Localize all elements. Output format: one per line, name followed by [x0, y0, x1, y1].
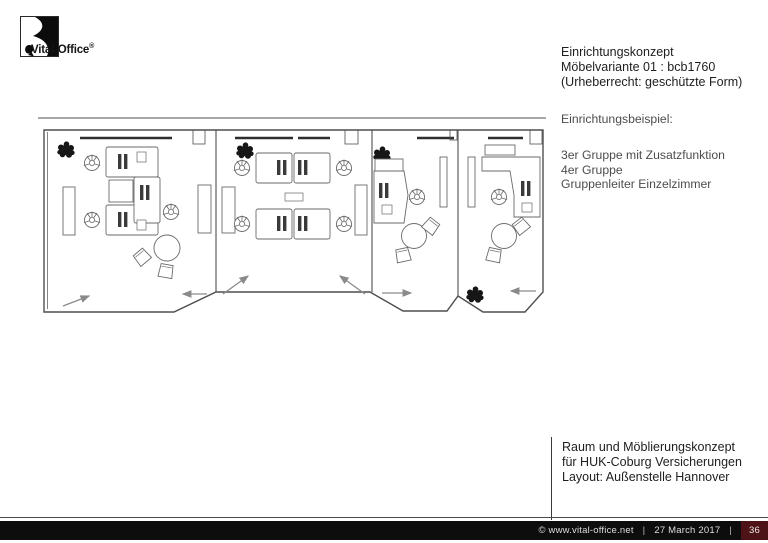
example-title: Einrichtungsbeispiel:	[561, 112, 725, 127]
project-block: Raum und Möblierungskonzept für HUK-Cobu…	[562, 440, 742, 485]
room-gruppenleiter-2	[466, 145, 540, 303]
desk-accessory	[137, 220, 146, 230]
cabinet	[222, 187, 235, 233]
visitor-chair	[486, 247, 502, 263]
desk-accessory	[522, 203, 532, 212]
footer-separator: |	[729, 525, 732, 536]
example-item-2: 4er Gruppe	[561, 163, 725, 178]
footer-date: 27 March 2017	[654, 525, 720, 536]
sideboard	[485, 145, 515, 155]
project-line-1: Raum und Möblierungskonzept	[562, 440, 742, 455]
footer-bar: © www.vital-office.net | 27 March 2017 |…	[0, 521, 768, 540]
footer-hairline	[0, 517, 768, 518]
cabinet	[468, 157, 475, 207]
cabinet	[198, 185, 211, 233]
footer-copyright: © www.vital-office.net	[538, 525, 633, 536]
document-page: Vital-Office® Einrichtungskonzept Möbelv…	[0, 0, 768, 543]
desk-accessory	[137, 152, 146, 162]
office-chair	[163, 204, 179, 220]
visitor-chair	[395, 247, 411, 263]
office-chair	[336, 216, 352, 232]
plant-icon	[57, 141, 74, 157]
project-line-2: für HUK-Coburg Versicherungen	[562, 455, 742, 470]
office-chair	[234, 216, 250, 232]
meeting-table	[492, 224, 517, 249]
plant-icon	[466, 286, 483, 302]
office-chair	[84, 155, 100, 171]
door-swing-arrow	[340, 276, 365, 294]
desk-connector	[109, 180, 133, 202]
door-swing-arrow	[63, 296, 89, 306]
meeting-table	[154, 235, 180, 261]
cabinet	[63, 187, 75, 235]
concept-line-2: Möbelvariante 01 : bcb1760	[561, 60, 742, 75]
project-line-3: Layout: Außenstelle Hannover	[562, 470, 742, 485]
example-item-1: 3er Gruppe mit Zusatzfunktion	[561, 148, 725, 163]
registered-mark: ®	[89, 43, 94, 50]
concept-title-block: Einrichtungskonzept Möbelvariante 01 : b…	[561, 45, 742, 90]
office-chair	[491, 189, 507, 205]
visitor-chair	[158, 263, 174, 278]
vital-office-logo: Vital-Office®	[20, 16, 140, 62]
visitor-chair	[132, 248, 151, 267]
desk-connector	[285, 193, 303, 201]
office-chair	[84, 212, 100, 228]
concept-line-1: Einrichtungskonzept	[561, 45, 742, 60]
room-4er-gruppe	[222, 142, 367, 294]
logo-wordmark: Vital-Office®	[31, 43, 94, 56]
cabinet	[355, 185, 367, 235]
example-block: Einrichtungsbeispiel: 3er Gruppe mit Zus…	[561, 112, 725, 192]
desk	[106, 147, 158, 177]
project-block-rule	[551, 437, 552, 520]
example-item-3: Gruppenleiter Einzelzimmer	[561, 177, 725, 192]
floorplan	[30, 105, 550, 320]
desk	[256, 153, 292, 183]
door-swing-arrow	[223, 276, 248, 294]
office-chair	[409, 189, 425, 205]
page-number-badge: 36	[741, 521, 768, 540]
plant-icon	[236, 142, 253, 158]
desk-accessory	[382, 205, 392, 214]
office-chair	[336, 160, 352, 176]
room-gruppenleiter-1	[373, 146, 447, 293]
office-chair	[234, 160, 250, 176]
cabinet	[440, 157, 447, 207]
concept-line-3: (Urheberrecht: geschützte Form)	[561, 75, 742, 90]
desk	[256, 209, 292, 239]
room-3er-gruppe-mit-zusatzfunktion	[57, 141, 211, 306]
sideboard	[375, 159, 403, 171]
footer-separator: |	[643, 525, 646, 536]
